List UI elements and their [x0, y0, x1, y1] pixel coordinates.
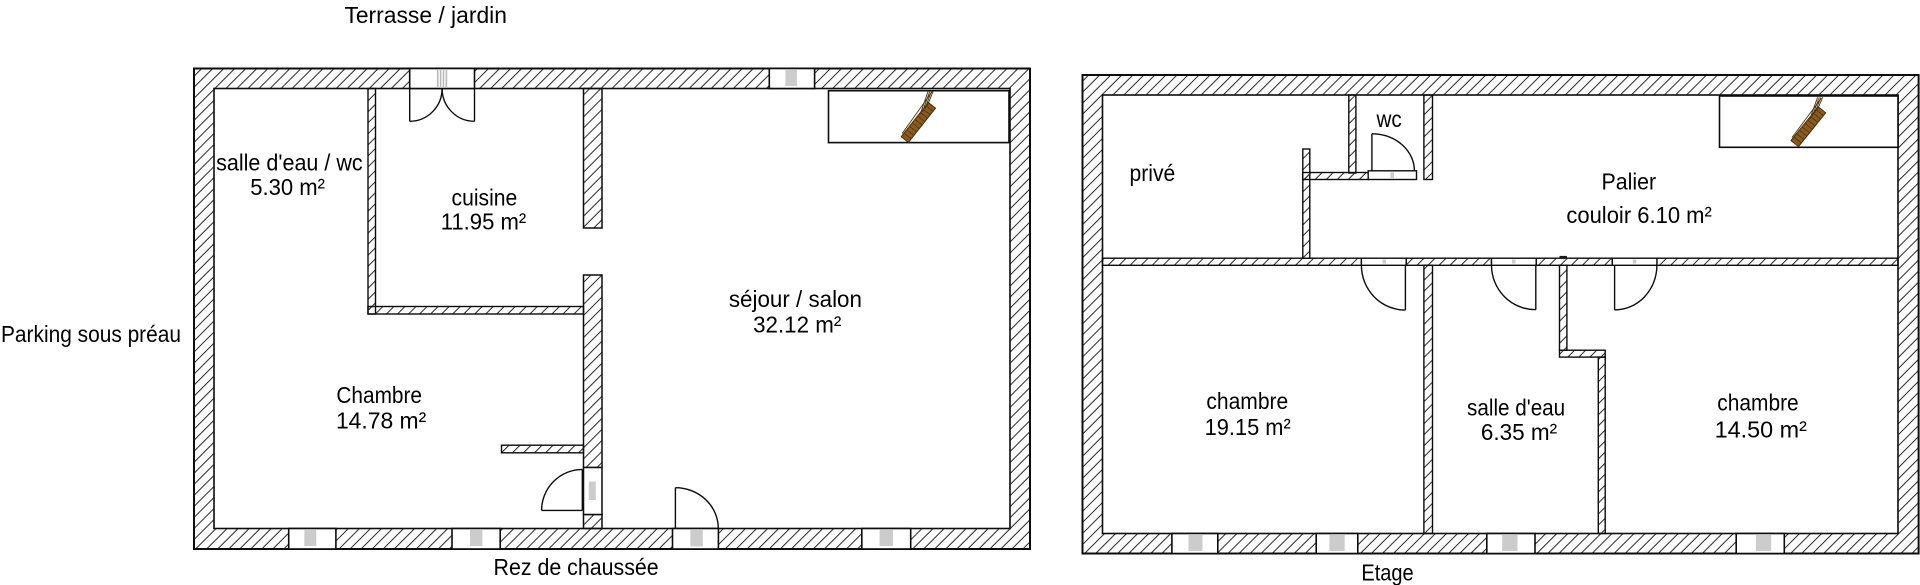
- svg-text:Terrasse / jardin: Terrasse / jardin: [344, 2, 507, 28]
- svg-text:5.30 m²: 5.30 m²: [250, 174, 325, 200]
- svg-text:Etage: Etage: [1361, 560, 1413, 585]
- svg-text:Rez de chaussée: Rez de chaussée: [494, 554, 659, 580]
- svg-text:salle d'eau / wc: salle d'eau / wc: [216, 150, 363, 176]
- svg-text:14.78 m²: 14.78 m²: [336, 408, 426, 434]
- svg-text:privé: privé: [1130, 160, 1176, 186]
- svg-text:11.95 m²: 11.95 m²: [441, 209, 527, 235]
- svg-text:32.12 m²: 32.12 m²: [753, 312, 841, 338]
- svg-text:Chambre: Chambre: [336, 382, 422, 408]
- svg-text:couloir 6.10 m²: couloir 6.10 m²: [1566, 202, 1712, 228]
- svg-text:Palier: Palier: [1602, 169, 1657, 195]
- svg-text:séjour / salon: séjour / salon: [729, 286, 862, 312]
- svg-text:cuisine: cuisine: [452, 185, 518, 211]
- svg-text:salle d'eau: salle d'eau: [1467, 394, 1565, 420]
- svg-text:14.50 m²: 14.50 m²: [1715, 417, 1807, 443]
- svg-text:wc: wc: [1376, 106, 1402, 132]
- svg-text:6.35 m²: 6.35 m²: [1481, 419, 1557, 445]
- svg-text:19.15 m²: 19.15 m²: [1205, 414, 1291, 440]
- svg-text:chambre: chambre: [1717, 389, 1798, 415]
- svg-text:chambre: chambre: [1206, 388, 1288, 414]
- svg-text:Parking sous préau: Parking sous préau: [1, 321, 181, 347]
